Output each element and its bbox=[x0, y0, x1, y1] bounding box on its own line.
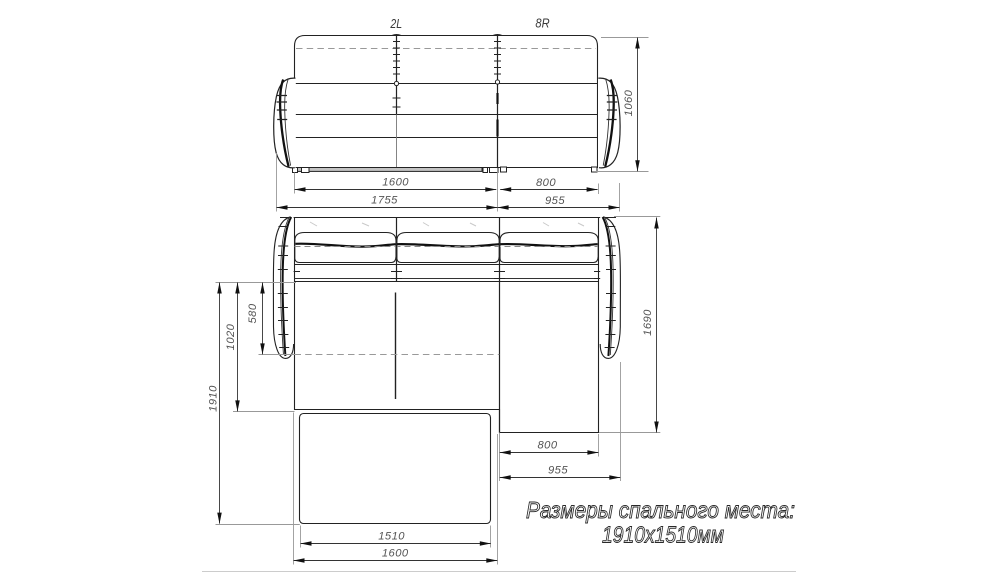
svg-text:1690: 1690 bbox=[642, 309, 654, 336]
svg-text:Размеры спального места:: Размеры спального места: bbox=[526, 497, 795, 523]
svg-text:955: 955 bbox=[545, 195, 565, 207]
svg-text:1600: 1600 bbox=[382, 177, 409, 189]
svg-text:1755: 1755 bbox=[371, 195, 398, 207]
svg-text:800: 800 bbox=[537, 439, 557, 451]
svg-text:8R: 8R bbox=[535, 16, 549, 31]
svg-text:1910х1510мм: 1910х1510мм bbox=[602, 522, 724, 548]
svg-text:800: 800 bbox=[536, 177, 556, 189]
svg-text:1510: 1510 bbox=[378, 531, 405, 543]
svg-text:580: 580 bbox=[247, 303, 259, 323]
svg-text:1910: 1910 bbox=[207, 385, 219, 412]
svg-text:1600: 1600 bbox=[382, 548, 409, 560]
svg-text:2L: 2L bbox=[390, 16, 403, 31]
svg-text:1020: 1020 bbox=[225, 323, 237, 350]
svg-text:1060: 1060 bbox=[623, 89, 635, 116]
svg-text:955: 955 bbox=[548, 464, 568, 476]
